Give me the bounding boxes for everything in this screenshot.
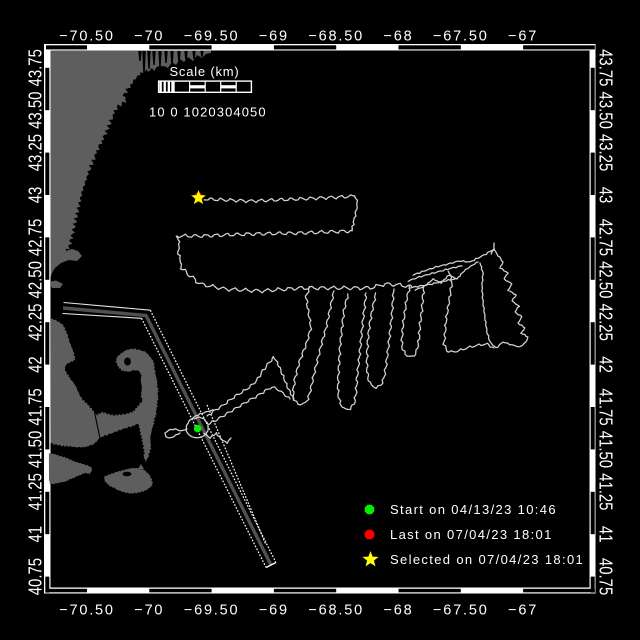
svg-text:−69.50: −69.50: [184, 603, 240, 619]
svg-text:42: 42: [25, 356, 46, 373]
svg-text:Scale (km): Scale (km): [169, 64, 239, 79]
svg-text:−70.50: −70.50: [59, 29, 115, 45]
svg-text:−67.50: −67.50: [433, 29, 489, 45]
svg-text:41.50: 41.50: [595, 431, 616, 468]
svg-text:42.25: 42.25: [595, 304, 616, 341]
svg-text:−68.50: −68.50: [308, 29, 364, 45]
svg-text:−69: −69: [259, 603, 289, 619]
svg-text:−70: −70: [134, 29, 164, 45]
svg-text:41.50: 41.50: [25, 431, 46, 468]
svg-text:42.75: 42.75: [595, 219, 616, 256]
svg-text:43.25: 43.25: [595, 134, 616, 171]
svg-text:42.50: 42.50: [595, 261, 616, 298]
svg-text:43.50: 43.50: [25, 92, 46, 129]
svg-text:43.25: 43.25: [25, 134, 46, 171]
svg-text:Selected on 07/04/23 18:01: Selected on 07/04/23 18:01: [390, 552, 584, 567]
svg-text:40.75: 40.75: [595, 558, 616, 595]
svg-text:Last on 07/04/23 18:01: Last on 07/04/23 18:01: [390, 527, 553, 542]
svg-text:43.75: 43.75: [595, 49, 616, 86]
svg-text:10 0 1020304050: 10 0 1020304050: [149, 105, 267, 120]
svg-text:41.75: 41.75: [595, 388, 616, 425]
svg-text:−70: −70: [134, 603, 164, 619]
svg-text:41.75: 41.75: [25, 388, 46, 425]
svg-text:42.75: 42.75: [25, 219, 46, 256]
svg-text:−69.50: −69.50: [184, 29, 240, 45]
svg-text:41: 41: [595, 526, 616, 543]
svg-text:Start on 04/13/23 10:46: Start on 04/13/23 10:46: [390, 502, 557, 517]
svg-text:−68: −68: [384, 603, 414, 619]
svg-text:41: 41: [25, 526, 46, 543]
svg-text:40.75: 40.75: [25, 558, 46, 595]
svg-text:41.25: 41.25: [595, 473, 616, 510]
svg-text:−67: −67: [508, 603, 538, 619]
svg-text:43: 43: [25, 187, 46, 204]
svg-text:−68.50: −68.50: [308, 603, 364, 619]
svg-text:−70.50: −70.50: [59, 603, 115, 619]
svg-text:−69: −69: [259, 29, 289, 45]
svg-text:42: 42: [595, 356, 616, 373]
svg-text:−68: −68: [384, 29, 414, 45]
svg-text:43.50: 43.50: [595, 92, 616, 129]
svg-text:−67.50: −67.50: [433, 603, 489, 619]
svg-text:42.50: 42.50: [25, 261, 46, 298]
svg-text:42.25: 42.25: [25, 304, 46, 341]
svg-text:41.25: 41.25: [25, 473, 46, 510]
svg-text:43.75: 43.75: [25, 49, 46, 86]
svg-text:43: 43: [595, 187, 616, 204]
svg-text:−67: −67: [508, 29, 538, 45]
